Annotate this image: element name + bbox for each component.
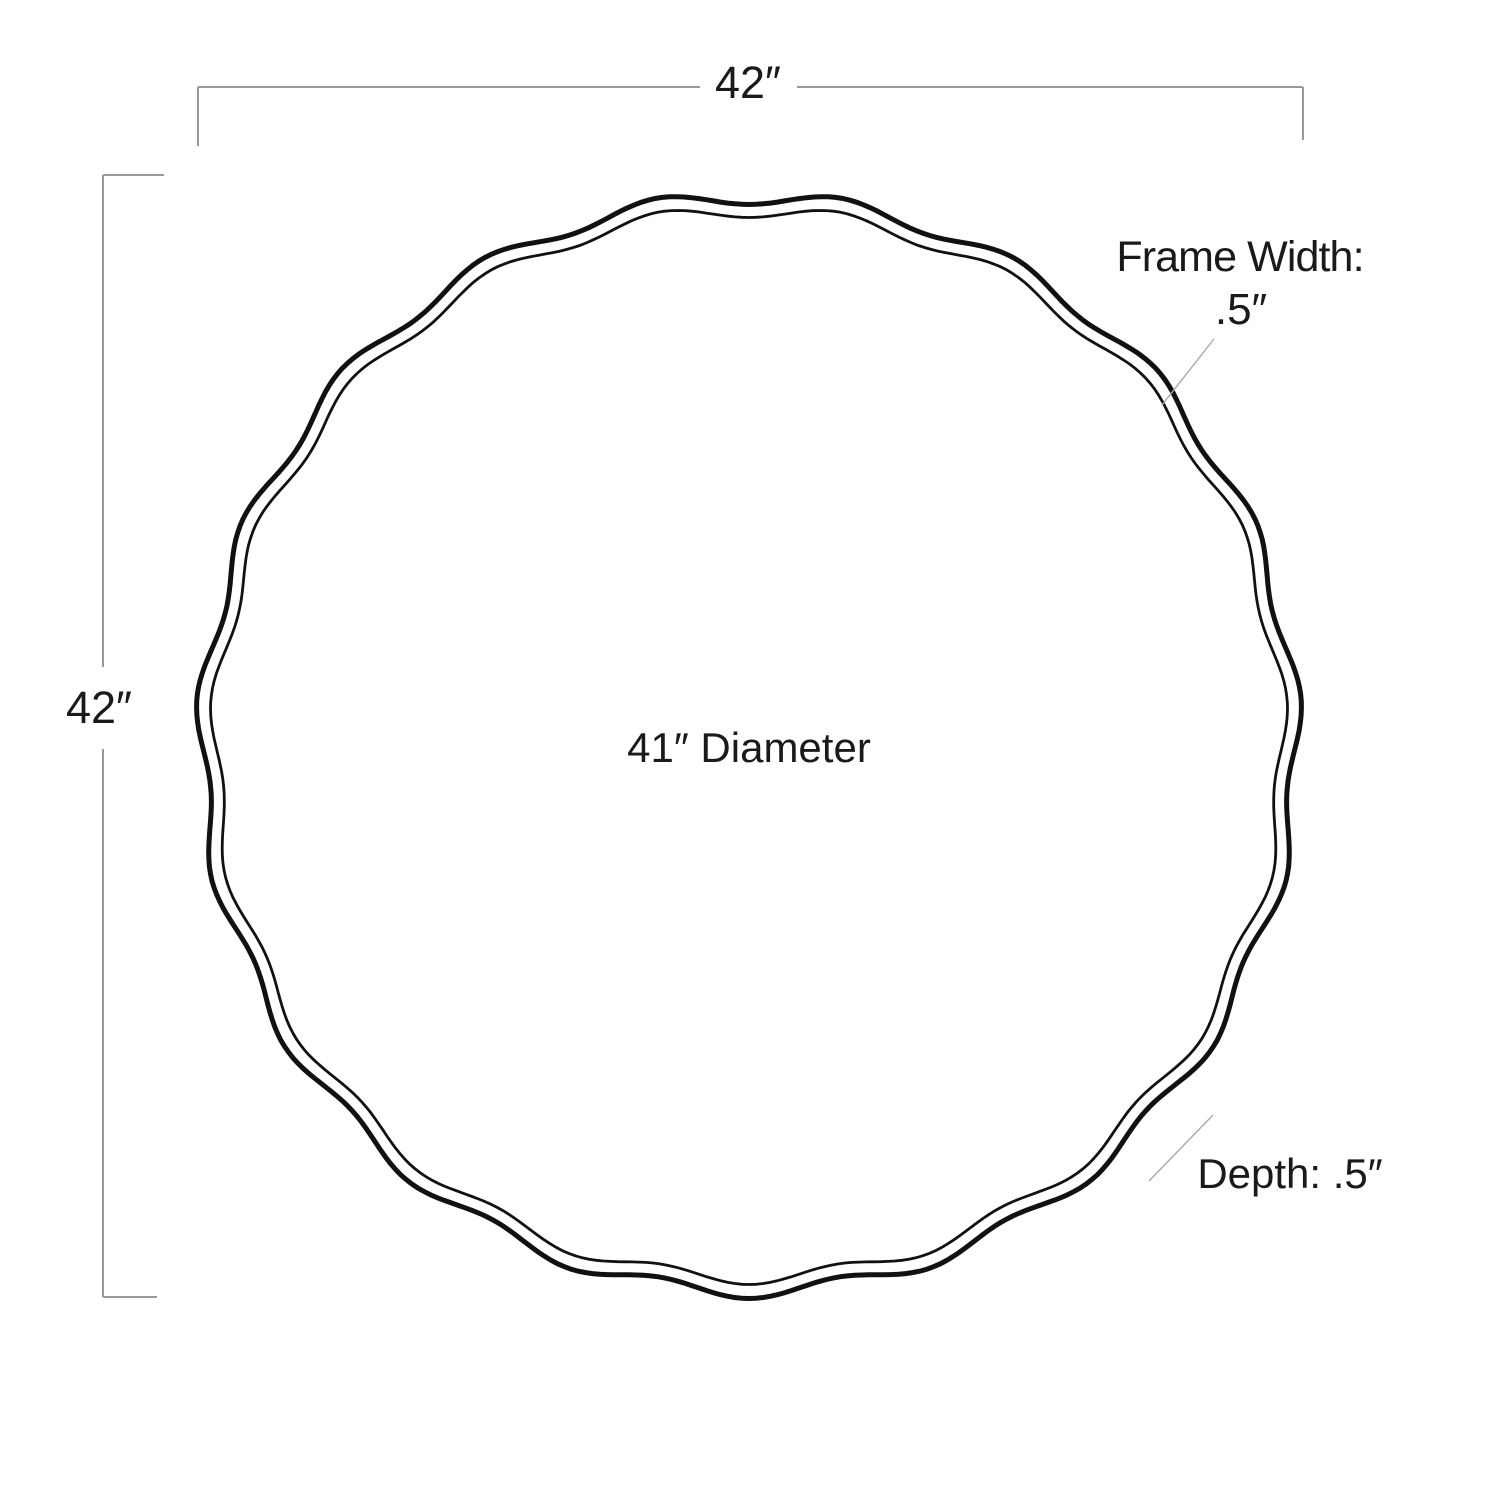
svg-text:42″: 42″ bbox=[715, 57, 781, 108]
svg-text:42″: 42″ bbox=[66, 682, 132, 733]
svg-text:41″ Diameter: 41″ Diameter bbox=[627, 724, 871, 771]
svg-text:Depth: .5″: Depth: .5″ bbox=[1197, 1150, 1382, 1197]
svg-text:Frame Width:: Frame Width: bbox=[1116, 233, 1363, 281]
svg-text:.5″: .5″ bbox=[1215, 285, 1267, 334]
